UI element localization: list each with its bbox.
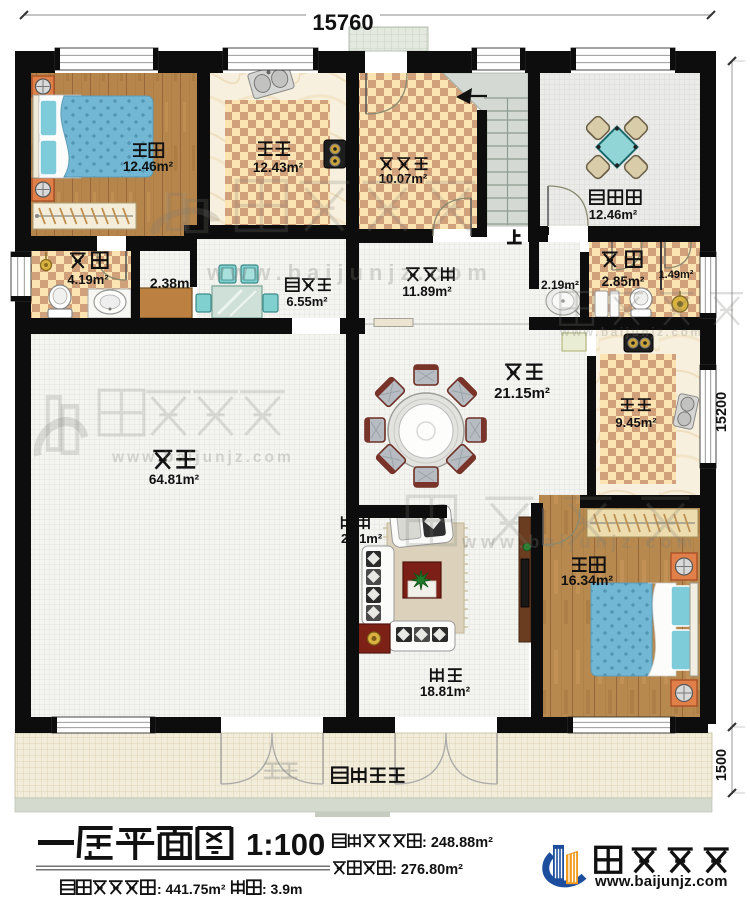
svg-text:www.baijunjz.com: www.baijunjz.com (461, 532, 697, 552)
svg-text:www.baijunjz.com: www.baijunjz.com (559, 325, 704, 339)
svg-text:2.38m²: 2.38m² (150, 275, 195, 291)
svg-text:2.85m²: 2.85m² (602, 274, 645, 289)
svg-text:12.43m²: 12.43m² (253, 160, 304, 175)
svg-text:15760: 15760 (312, 10, 373, 35)
svg-text:18.81m²: 18.81m² (420, 684, 471, 699)
svg-text:6.55m²: 6.55m² (286, 294, 328, 309)
svg-text:: 248.88m²: : 248.88m² (422, 835, 493, 851)
svg-text:1:100: 1:100 (246, 827, 325, 862)
svg-text:1.49m²: 1.49m² (659, 269, 694, 281)
svg-text:2.19m²: 2.19m² (541, 278, 579, 292)
svg-text:12.46m²: 12.46m² (123, 159, 174, 174)
svg-text:15200: 15200 (714, 392, 730, 432)
svg-text:4.19m²: 4.19m² (67, 272, 109, 287)
svg-text:1500: 1500 (714, 749, 730, 781)
svg-text:64.81m²: 64.81m² (149, 472, 200, 487)
svg-text:11.89m²: 11.89m² (402, 284, 452, 299)
svg-text:: 276.80m²: : 276.80m² (392, 862, 463, 878)
svg-text:9.45m²: 9.45m² (615, 415, 657, 430)
svg-text:: 441.75m²: : 441.75m² (157, 881, 226, 897)
svg-text:www.baijunjz.com: www.baijunjz.com (206, 260, 493, 285)
svg-text:16.34m²: 16.34m² (561, 572, 613, 588)
svg-text:12.46m²: 12.46m² (589, 207, 638, 222)
svg-text:: 3.9m: : 3.9m (262, 881, 302, 897)
svg-text:www.baijunjz.com: www.baijunjz.com (111, 449, 294, 466)
svg-text:21.15m²: 21.15m² (494, 385, 550, 402)
svg-text:www.baijunjz.com: www.baijunjz.com (594, 873, 728, 890)
